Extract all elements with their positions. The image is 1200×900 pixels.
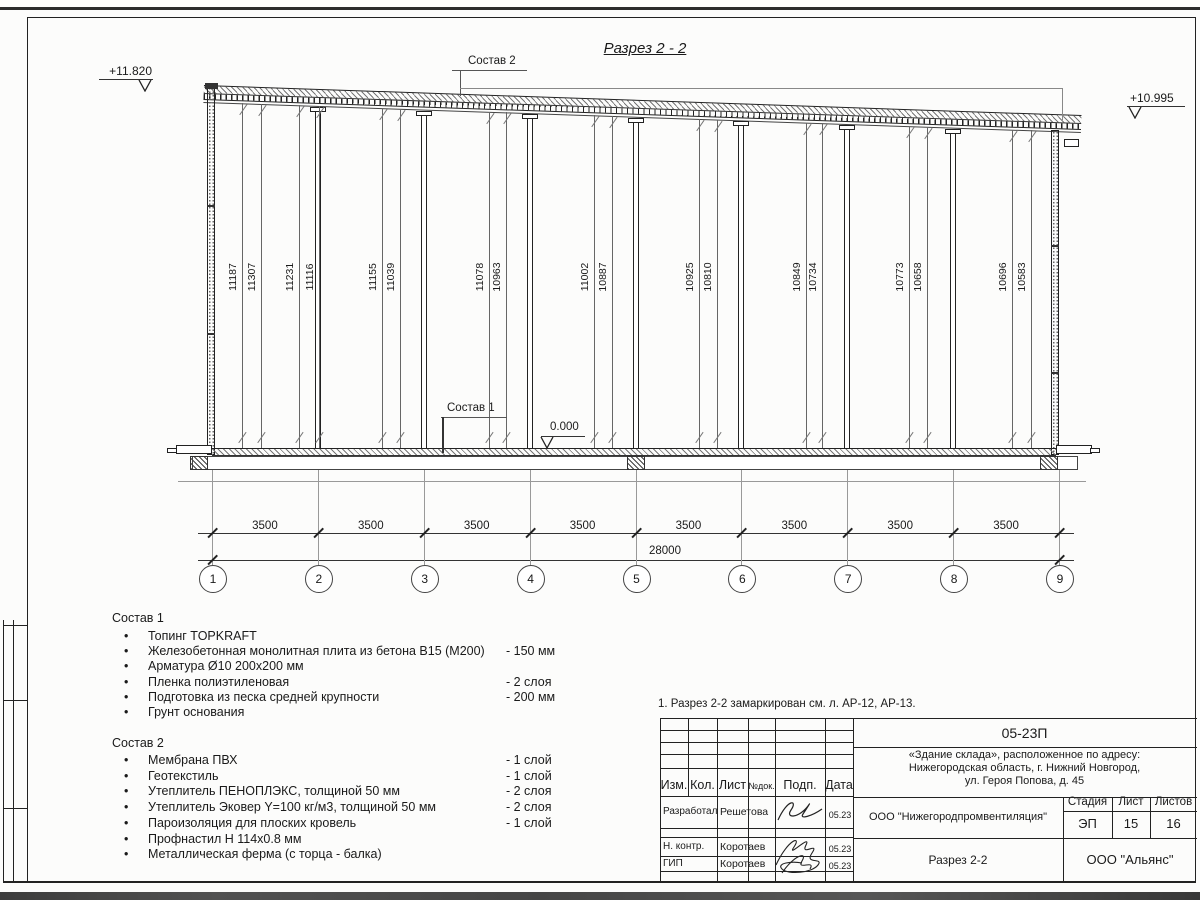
axis-bubble: 9 <box>1046 565 1074 593</box>
titleblock-vline <box>853 718 854 882</box>
wall-member-line <box>299 105 300 448</box>
drawing-sheet: Разрез 2 - 2 +11.820 +10.995 0.000 Соста… <box>0 0 1200 900</box>
titleblock-column-header: Подп. <box>775 778 825 792</box>
column <box>633 123 639 448</box>
axis-bubble: 7 <box>834 565 862 593</box>
title-block-top <box>660 718 1197 719</box>
elevation-mark-icon <box>1128 107 1142 119</box>
member-height-label: 10734 <box>807 247 819 307</box>
left-wall-coping <box>205 83 218 89</box>
titleblock-hline <box>853 797 1197 798</box>
titleblock-hline <box>660 742 853 743</box>
axis-extension-line <box>741 470 742 565</box>
wall-member-line <box>242 103 243 448</box>
composition1-leader-underline <box>441 417 507 418</box>
member-height-label: 10849 <box>791 247 803 307</box>
composition2-leader-vertical <box>460 70 461 96</box>
member-height-label: 11002 <box>579 247 591 307</box>
axis-bubble: 6 <box>728 565 756 593</box>
wall-member-line <box>489 112 490 448</box>
composition2-item-qty: - 2 слоя <box>506 784 551 798</box>
composition1-item-text: Железобетонная монолитная плита из бетон… <box>148 644 485 658</box>
composition2-item-text: Утеплитель ПЕНОПЛЭКС, толщиной 50 мм <box>148 784 400 798</box>
axis-extension-line <box>318 470 319 565</box>
composition1-item-text: Топинг TOPKRAFT <box>148 629 257 643</box>
titleblock-date: 05.23 <box>827 861 853 871</box>
bay-dimension-value: 3500 <box>666 520 710 532</box>
titleblock-vline <box>1112 797 1113 838</box>
member-height-label: 10810 <box>702 247 714 307</box>
composition2-bullet: • <box>124 784 128 798</box>
titleblock-vline <box>1150 797 1151 838</box>
wall-member-line <box>594 115 595 448</box>
composition2-item-text: Мембрана ПВХ <box>148 753 237 767</box>
roof-connection-tick <box>714 120 722 131</box>
member-height-label: 10963 <box>491 247 503 307</box>
composition1-bullet: • <box>124 629 128 643</box>
composition2-item-text: Утеплитель Эковер Y=100 кг/м3, толщиной … <box>148 800 436 814</box>
member-height-label: 10658 <box>912 247 924 307</box>
frame-top <box>27 17 1196 18</box>
titleblock-client: ООО "Альянс" <box>1063 852 1197 867</box>
titleblock-column-header: Изм. <box>660 778 688 792</box>
left-ledge <box>176 445 212 454</box>
sheet-note: 1. Разрез 2-2 замаркирован см. л. АР-12,… <box>658 698 916 710</box>
roof-connection-tick <box>503 113 511 124</box>
composition1-title: Состав 1 <box>112 611 164 625</box>
wall-member-line <box>382 108 383 448</box>
roof-connection-tick <box>397 110 405 121</box>
roof-connection-tick <box>609 117 617 128</box>
frame-left <box>27 17 28 882</box>
wall-member-line <box>400 109 401 448</box>
roof-connection-tick <box>1009 131 1017 142</box>
member-height-label: 11116 <box>304 247 316 307</box>
member-height-label: 10887 <box>597 247 609 307</box>
titleblock-name: Решетова <box>720 806 768 818</box>
roof-connection-tick <box>819 124 827 135</box>
elevation-top-left-value: +11.820 <box>66 64 152 78</box>
right-ledge <box>1056 445 1092 454</box>
member-height-label: 11078 <box>474 247 486 307</box>
composition2-callout-label: Состав 2 <box>468 55 516 67</box>
titleblock-role: Н. контр. <box>663 841 704 852</box>
composition2-item-qty: - 1 слой <box>506 769 552 783</box>
composition1-item-qty: - 2 слоя <box>506 675 551 689</box>
composition2-item-text: Профнастил Н 114х0.8 мм <box>148 832 301 846</box>
titleblock-hline <box>660 768 853 769</box>
column <box>421 116 427 448</box>
axis-extension-line <box>1059 470 1060 565</box>
column <box>527 119 533 448</box>
elevation-mark-icon <box>138 80 152 92</box>
wall-joint-mark <box>207 205 215 207</box>
composition1-bullet: • <box>124 705 128 719</box>
titleblock-vline <box>1063 797 1064 882</box>
drawing-view-title: Разрез 2 - 2 <box>560 40 730 57</box>
axis-bubble: 1 <box>199 565 227 593</box>
side-stamp-divider-line <box>13 620 14 882</box>
titleblock-column-header: Лист <box>717 778 748 792</box>
composition1-bullet: • <box>124 675 128 689</box>
member-height-label: 11307 <box>246 247 258 307</box>
titleblock-hline <box>660 754 853 755</box>
side-stamp-outer-line <box>3 620 4 882</box>
floor-slab <box>212 448 1056 456</box>
titleblock-column-header: №док. <box>748 781 775 791</box>
wall-member-line <box>927 127 928 448</box>
side-stamp-row-line <box>3 808 27 809</box>
wall-member-line <box>1012 130 1013 448</box>
column <box>950 134 956 448</box>
wall-member-line <box>506 112 507 448</box>
titleblock-date: 05.23 <box>827 844 853 854</box>
bay-dimension-value: 3500 <box>455 520 499 532</box>
foundation-pad <box>627 456 645 470</box>
roof-connection-tick <box>696 120 704 131</box>
roof-connection-tick <box>258 105 266 116</box>
titleblock-column-header: Дата <box>825 778 853 792</box>
composition2-extent-line <box>460 88 1062 89</box>
titleblock-column-header: Кол. <box>688 778 717 792</box>
member-height-label: 11187 <box>227 247 239 307</box>
composition2-bullet: • <box>124 832 128 846</box>
composition2-bullet: • <box>124 816 128 830</box>
composition2-title: Состав 2 <box>112 736 164 750</box>
titleblock-name: Коротаев <box>720 841 765 853</box>
bay-dimension-value: 3500 <box>349 520 393 532</box>
axis-extension-line <box>424 470 425 565</box>
roof-gutter <box>1064 139 1079 147</box>
titleblock-date: 05.23 <box>827 810 853 820</box>
bay-dimension-value: 3500 <box>243 520 287 532</box>
composition1-leader-vertical <box>442 417 444 453</box>
composition2-item-qty: - 2 слоя <box>506 800 551 814</box>
column <box>844 130 850 448</box>
axis-extension-line <box>636 470 637 565</box>
composition2-item-text: Металлическая ферма (с торца - балка) <box>148 847 382 861</box>
titleblock-drawing-title: Разрез 2-2 <box>853 853 1063 867</box>
composition2-item-qty: - 1 слой <box>506 753 552 767</box>
side-stamp-row-line <box>3 700 27 701</box>
titleblock-stage-value: ЭП <box>1063 816 1112 831</box>
titleblock-hline <box>853 838 1197 839</box>
roof-connection-tick <box>296 106 304 117</box>
wall-member-line <box>699 119 700 448</box>
composition1-item-qty: - 150 мм <box>506 644 555 658</box>
titleblock-hline <box>660 856 853 857</box>
composition1-item-text: Грунт основания <box>148 705 244 719</box>
composition2-bullet: • <box>124 847 128 861</box>
roof-connection-tick <box>591 116 599 127</box>
composition2-leader-underline <box>452 70 527 71</box>
total-dimension-value: 28000 <box>635 545 695 557</box>
ground-line <box>178 481 1086 482</box>
roof-assembly <box>203 85 1081 133</box>
elevation-top-right-value: +10.995 <box>1130 91 1192 105</box>
bay-dimension-value: 3500 <box>772 520 816 532</box>
composition2-item-text: Геотекстиль <box>148 769 218 783</box>
wall-member-line <box>717 120 718 448</box>
titleblock-sheets-total: 16 <box>1150 816 1197 831</box>
bay-dimension-value: 3500 <box>984 520 1028 532</box>
member-height-label: 10583 <box>1016 247 1028 307</box>
composition1-item-qty: - 200 мм <box>506 690 555 704</box>
sheet-top-edge <box>0 7 1200 10</box>
titleblock-hline <box>660 730 853 731</box>
composition1-item-text: Пленка полиэтиленовая <box>148 675 289 689</box>
titleblock-name: Коротаев <box>720 858 765 870</box>
titleblock-doc-code: 05-23П <box>853 725 1196 741</box>
composition2-bullet: • <box>124 800 128 814</box>
axis-bubble: 3 <box>411 565 439 593</box>
roof-connection-tick <box>906 127 914 138</box>
wall-member-line <box>612 116 613 448</box>
titleblock-address-line2: Нижегородская область, г. Нижний Новгоро… <box>853 762 1196 774</box>
sheet-bottom-scan-edge <box>0 892 1200 900</box>
member-height-label: 10696 <box>997 247 1009 307</box>
foundation-pad <box>190 456 208 470</box>
titleblock-hline <box>660 837 853 838</box>
titleblock-hline <box>853 747 1197 748</box>
composition1-bullet: • <box>124 690 128 704</box>
side-stamp-row-line <box>3 625 27 626</box>
axis-extension-line <box>953 470 954 565</box>
titleblock-hline <box>660 796 853 797</box>
signature-icon <box>772 796 828 826</box>
member-height-label: 10925 <box>684 247 696 307</box>
right-wall <box>1051 130 1059 455</box>
titleblock-address-line3: ул. Героя Попова, д. 45 <box>853 775 1196 787</box>
composition2-item-qty: - 1 слой <box>506 816 552 830</box>
bay-dimension-value: 3500 <box>878 520 922 532</box>
left-wall <box>207 86 215 455</box>
bay-dimension-value: 3500 <box>561 520 605 532</box>
composition2-bullet: • <box>124 753 128 767</box>
titleblock-role: Разработал <box>663 806 717 817</box>
axis-extension-line <box>847 470 848 565</box>
composition2-item-text: Пароизоляция для плоских кровель <box>148 816 356 830</box>
roof-connection-tick <box>803 124 811 135</box>
wall-joint-mark <box>1051 372 1059 374</box>
roof-connection-tick <box>379 109 387 120</box>
titleblock-designer: ООО "Нижегородпромвентиляция" <box>853 811 1063 823</box>
wall-member-line <box>261 104 262 448</box>
composition1-callout-label: Состав 1 <box>447 402 495 414</box>
titleblock-sheet-number: 15 <box>1112 816 1150 831</box>
frame-bottom <box>3 881 1196 883</box>
composition2-extent-drop <box>1062 88 1063 120</box>
roof-connection-tick <box>1028 131 1036 142</box>
wall-member-line <box>319 106 320 448</box>
roof-connection-tick <box>486 113 494 124</box>
titleblock-address-line1: «Здание склада», расположенное по адресу… <box>853 749 1196 761</box>
composition2-bullet: • <box>124 769 128 783</box>
elevation-zero-value: 0.000 <box>550 421 579 433</box>
axis-extension-line <box>530 470 531 565</box>
composition1-bullet: • <box>124 659 128 673</box>
axis-bubble: 8 <box>940 565 968 593</box>
roof-connection-tick <box>239 104 247 115</box>
member-height-label: 11155 <box>367 247 379 307</box>
composition1-item-text: Арматура Ø10 200x200 мм <box>148 659 304 673</box>
composition1-item-text: Подготовка из песка средней крупности <box>148 690 379 704</box>
wall-joint-mark <box>1051 245 1059 247</box>
wall-member-line <box>909 126 910 448</box>
wall-member-line <box>822 123 823 448</box>
titleblock-hline <box>660 828 853 829</box>
composition1-bullet: • <box>124 644 128 658</box>
member-height-label: 10773 <box>894 247 906 307</box>
foundation-pad <box>1040 456 1058 470</box>
titleblock-hline <box>1063 811 1197 812</box>
wall-member-line <box>1031 130 1032 448</box>
axis-bubble: 4 <box>517 565 545 593</box>
member-height-label: 11231 <box>284 247 296 307</box>
wall-joint-mark <box>207 333 215 335</box>
elevation-mark-icon <box>540 437 554 449</box>
axis-extension-line <box>212 470 213 565</box>
member-height-label: 11039 <box>385 247 397 307</box>
titleblock-hline <box>660 871 853 872</box>
column <box>738 126 744 448</box>
axis-bubble: 2 <box>305 565 333 593</box>
left-ledge-step <box>167 448 177 453</box>
roof-connection-tick <box>924 128 932 139</box>
right-ledge-step <box>1090 448 1100 453</box>
axis-bubble: 5 <box>623 565 651 593</box>
titleblock-role: ГИП <box>663 858 683 869</box>
